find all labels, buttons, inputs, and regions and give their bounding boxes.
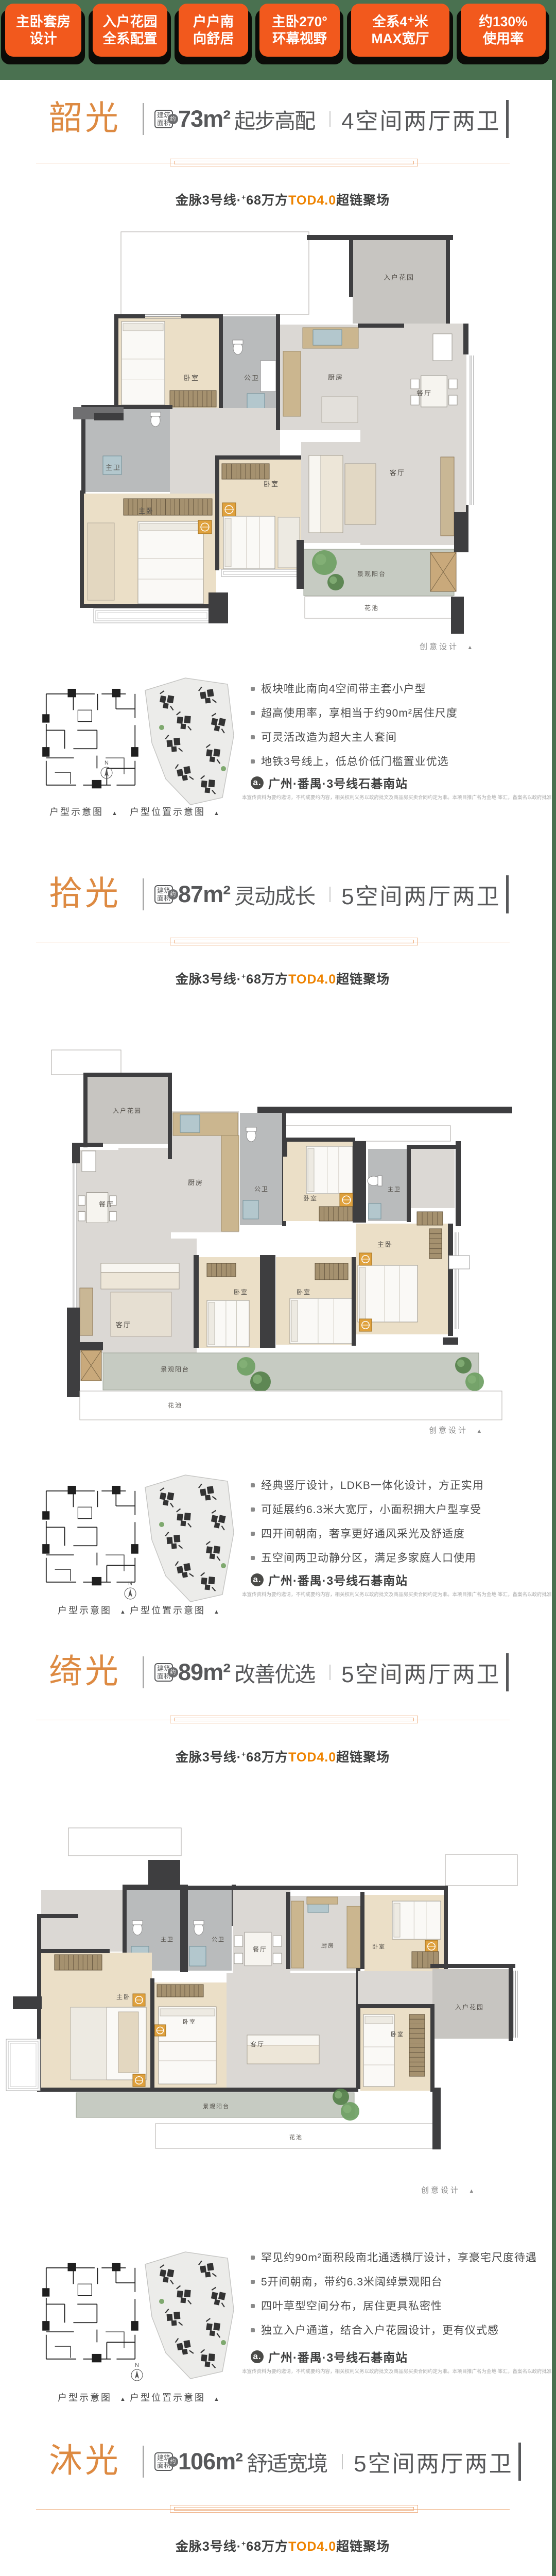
svg-text:主卧: 主卧 [138, 507, 154, 515]
svg-text:N: N [135, 2362, 139, 2368]
svg-text:卧室: 卧室 [372, 1943, 386, 1950]
svg-text:公卫: 公卫 [254, 1185, 269, 1193]
svg-text:主卫: 主卫 [161, 1936, 174, 1943]
svg-text:入户花园: 入户花园 [455, 2003, 484, 2011]
svg-text:N: N [105, 760, 109, 766]
svg-text:厨房: 厨房 [321, 1942, 335, 1949]
svg-text:卧室: 卧室 [391, 2030, 404, 2038]
svg-text:花池: 花池 [364, 604, 379, 612]
svg-text:公卫: 公卫 [244, 374, 259, 382]
svg-text:景观阳台: 景观阳台 [203, 2103, 230, 2110]
svg-text:卧室: 卧室 [264, 480, 279, 488]
svg-text:景观阳台: 景观阳台 [161, 1365, 189, 1373]
svg-text:花池: 花池 [168, 1401, 182, 1409]
svg-text:花池: 花池 [289, 2134, 303, 2141]
svg-text:主卫: 主卫 [106, 464, 121, 471]
svg-text:客厅: 客厅 [116, 1321, 131, 1329]
svg-text:卧室: 卧室 [234, 1288, 248, 1296]
svg-text:餐厅: 餐厅 [253, 1945, 267, 1953]
svg-text:主卧: 主卧 [116, 1993, 131, 2001]
svg-text:卧室: 卧室 [303, 1194, 318, 1202]
svg-text:入户花园: 入户花园 [384, 274, 414, 281]
svg-text:客厅: 客厅 [390, 469, 405, 477]
svg-text:公卫: 公卫 [212, 1937, 225, 1943]
svg-text:客厅: 客厅 [250, 2040, 265, 2048]
svg-text:景观阳台: 景观阳台 [357, 570, 386, 578]
svg-text:N: N [128, 1581, 132, 1587]
svg-text:主卫: 主卫 [388, 1186, 401, 1193]
svg-text:餐厅: 餐厅 [99, 1200, 114, 1208]
svg-text:餐厅: 餐厅 [416, 389, 432, 397]
svg-text:入户花园: 入户花园 [113, 1107, 142, 1114]
svg-text:卧室: 卧室 [297, 1288, 311, 1296]
svg-text:卧室: 卧室 [184, 374, 199, 382]
svg-text:卧室: 卧室 [183, 2018, 196, 2025]
svg-text:厨房: 厨房 [328, 374, 343, 381]
svg-text:主卧: 主卧 [377, 1241, 393, 1248]
svg-text:厨房: 厨房 [188, 1179, 203, 1187]
